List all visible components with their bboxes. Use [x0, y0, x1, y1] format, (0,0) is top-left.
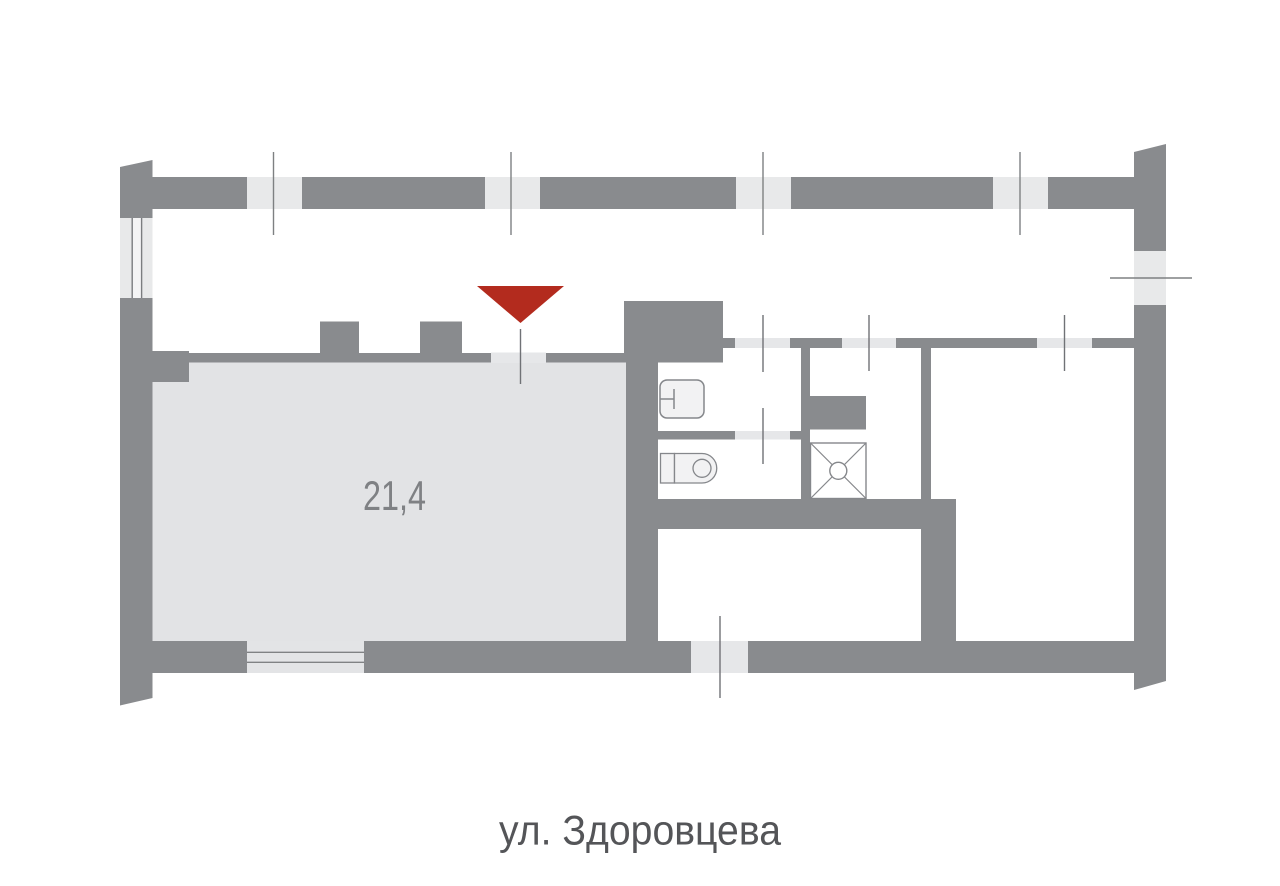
svg-text:ул. Здоровцева: ул. Здоровцева [499, 807, 782, 854]
svg-text:21,4: 21,4 [363, 472, 426, 519]
